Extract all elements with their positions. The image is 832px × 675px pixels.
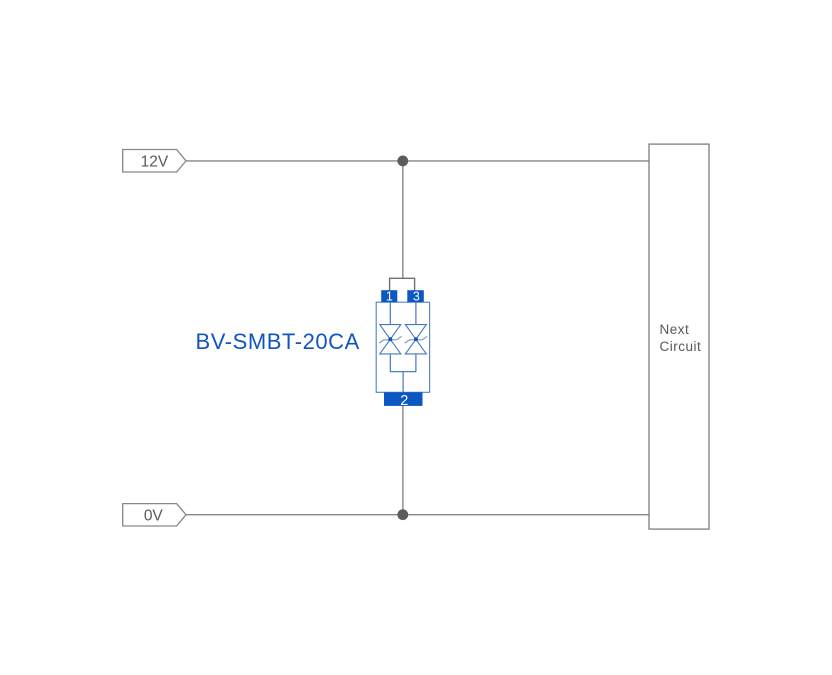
svg-text:12V: 12V — [141, 154, 169, 171]
svg-text:Circuit: Circuit — [660, 339, 702, 354]
svg-text:3: 3 — [413, 290, 420, 304]
svg-text:Next: Next — [660, 322, 690, 337]
svg-text:1: 1 — [386, 290, 393, 304]
svg-text:2: 2 — [400, 393, 408, 409]
svg-text:0V: 0V — [144, 507, 164, 524]
svg-text:BV-SMBT-20CA: BV-SMBT-20CA — [196, 329, 360, 354]
